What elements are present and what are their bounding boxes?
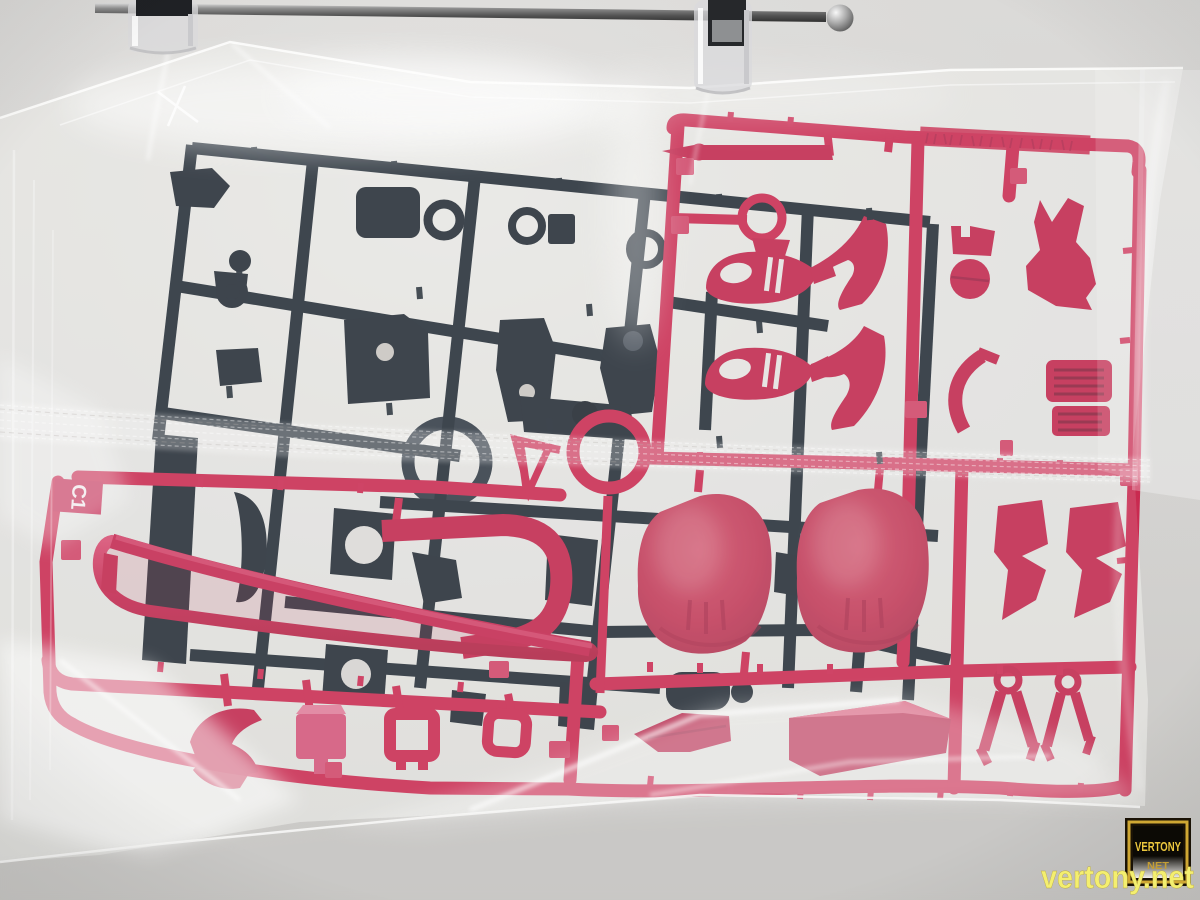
svg-text:vertony.net: vertony.net bbox=[1041, 859, 1194, 895]
svg-text:VERTONY: VERTONY bbox=[1135, 839, 1181, 854]
